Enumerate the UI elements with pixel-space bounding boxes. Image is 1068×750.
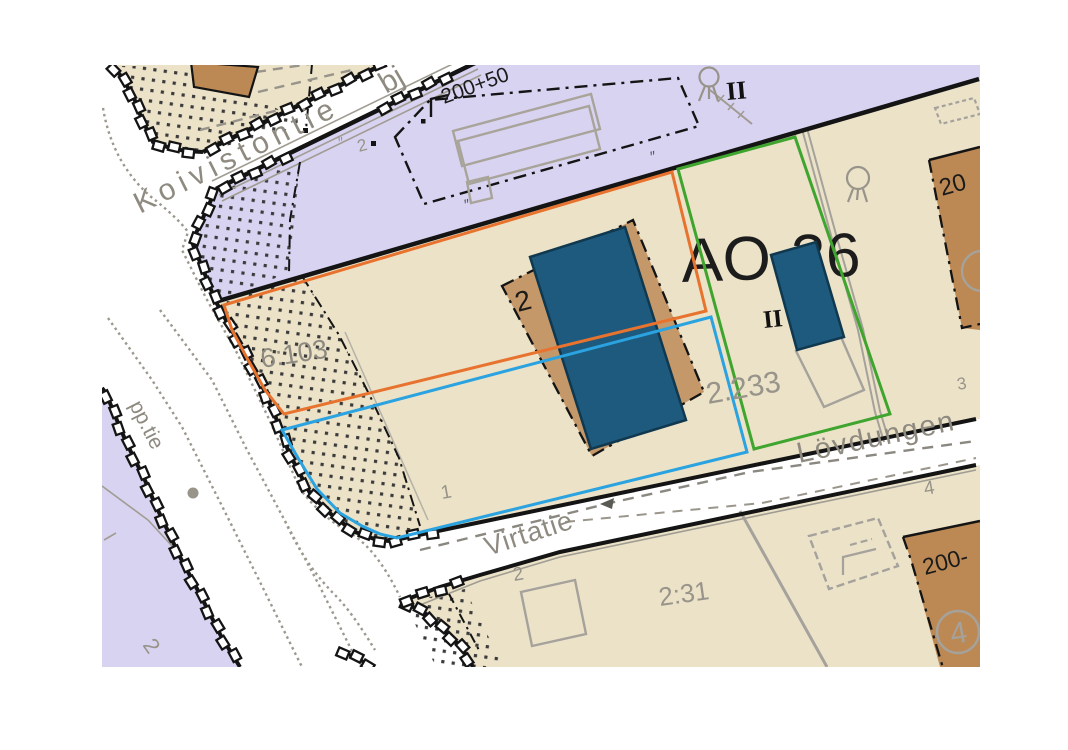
svg-text:II: II [725,75,748,106]
svg-text:II: II [762,305,784,334]
